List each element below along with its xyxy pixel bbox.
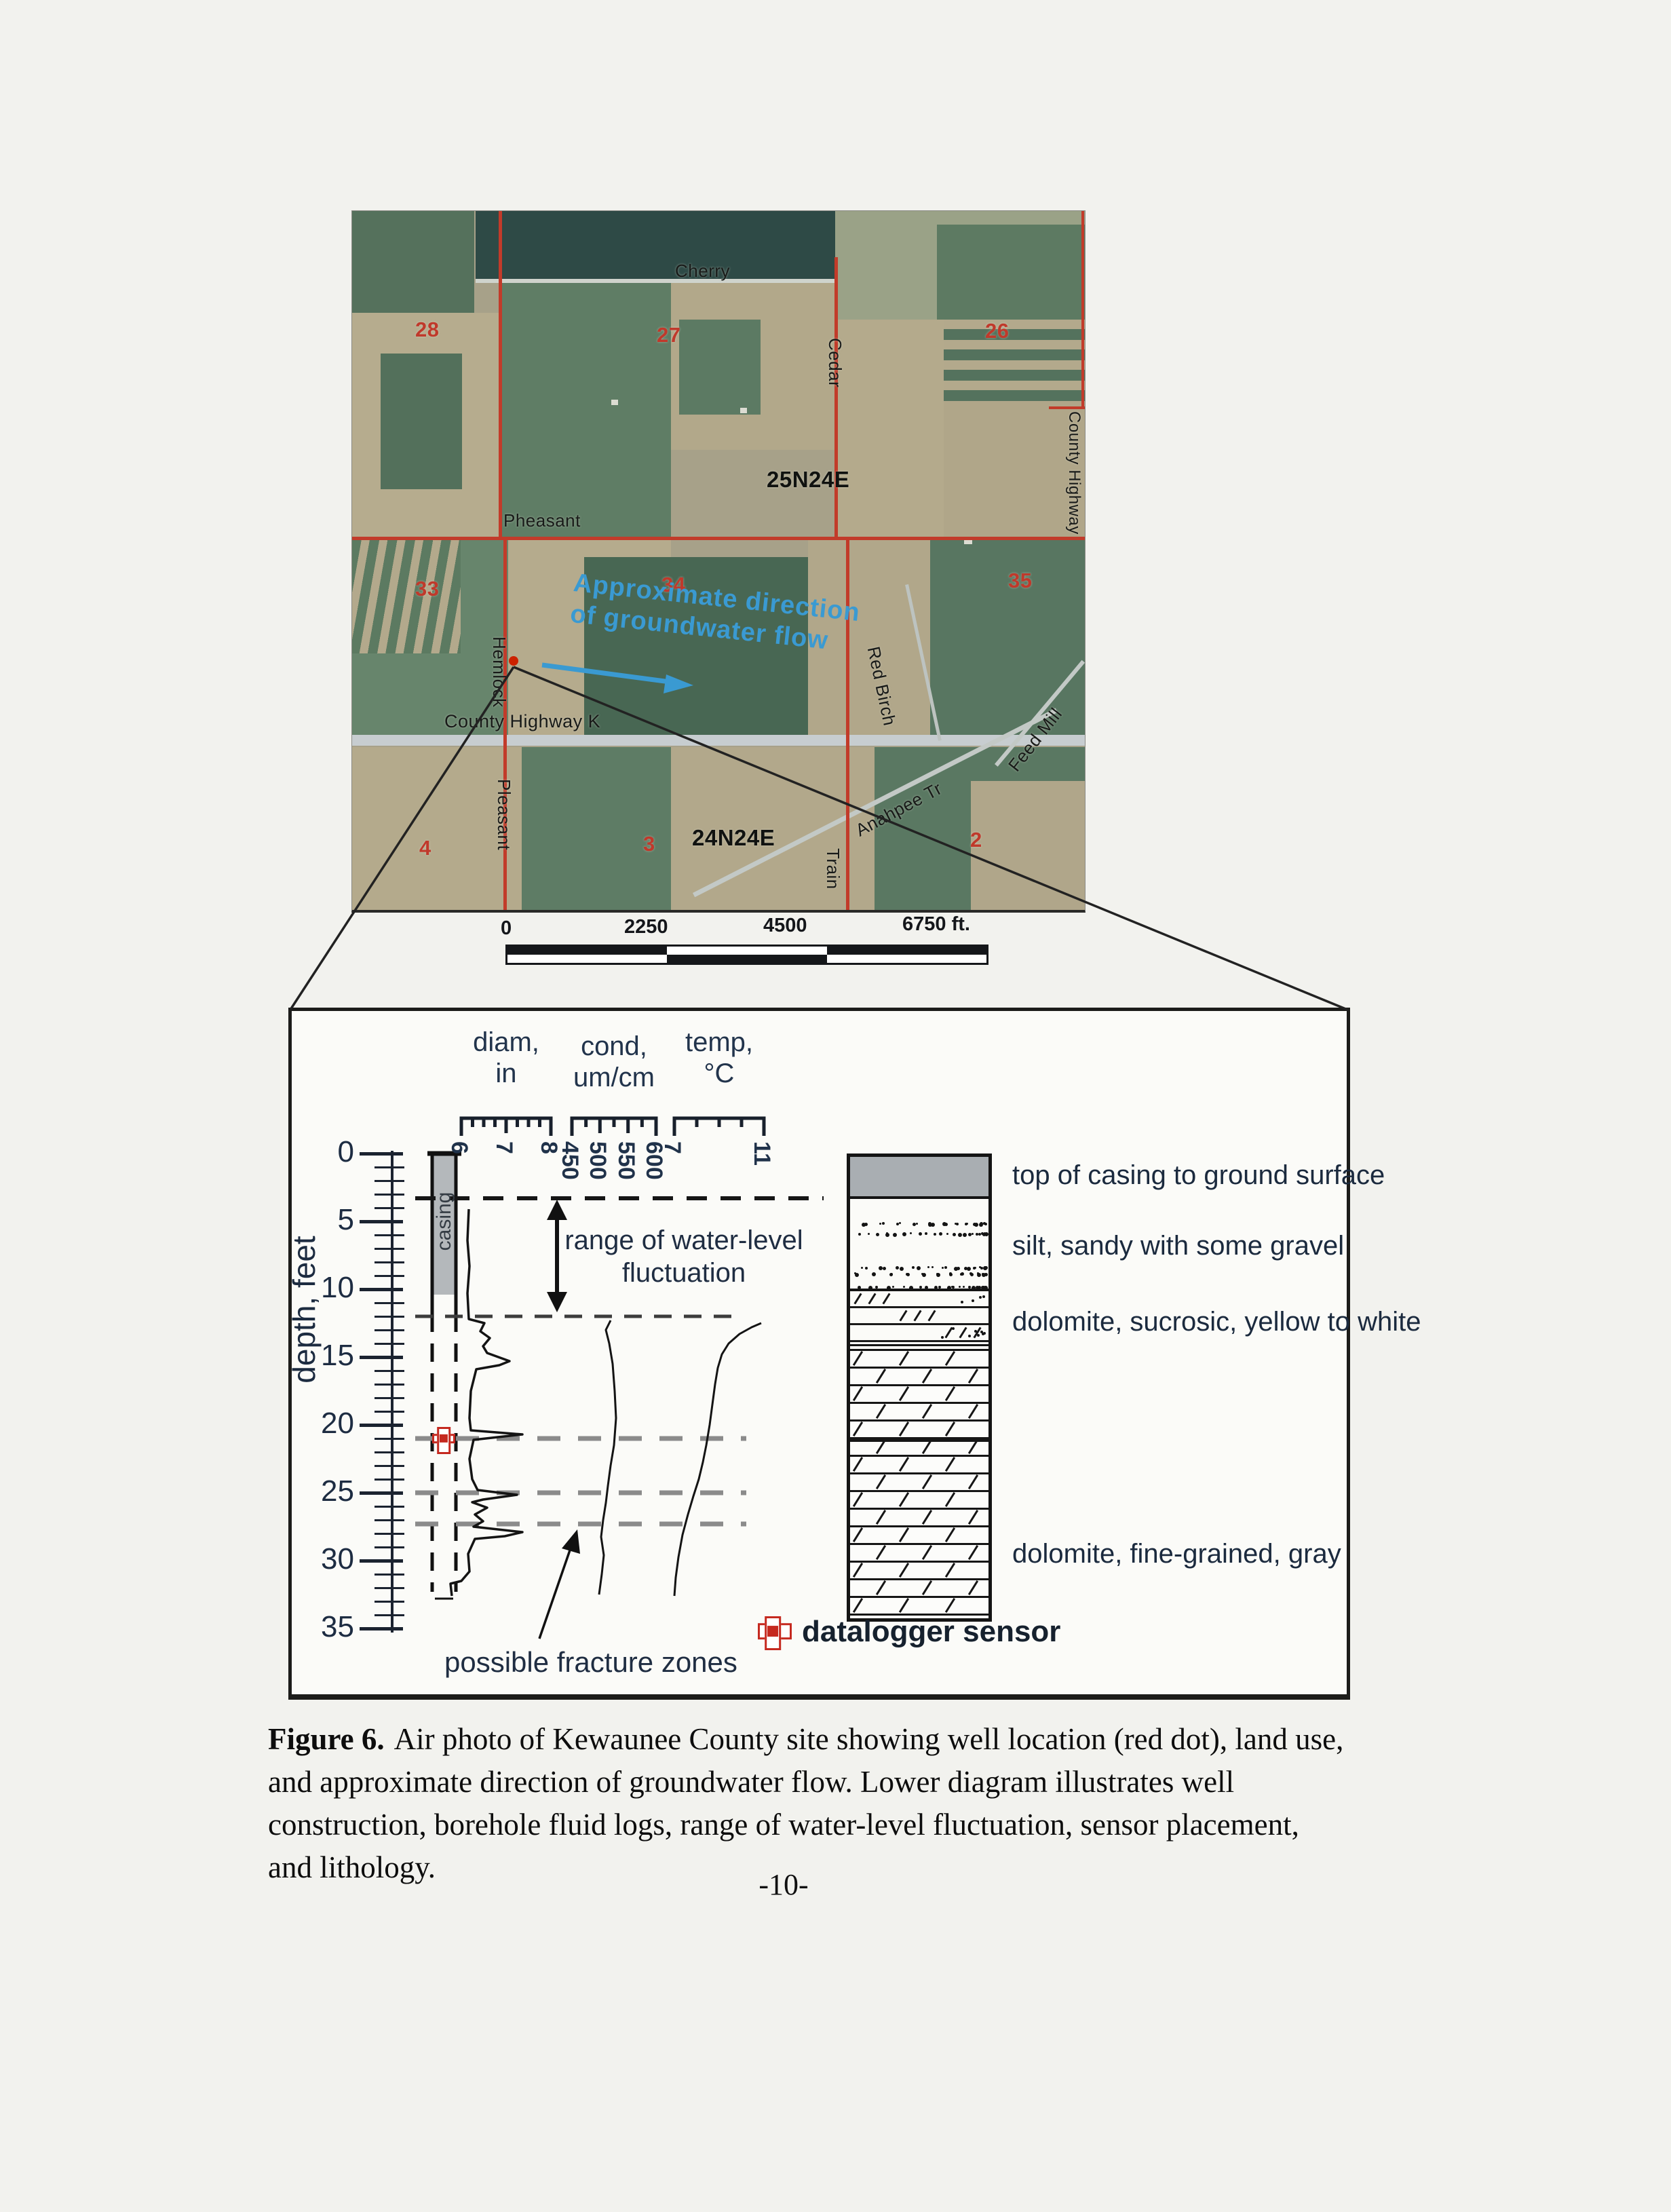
stipple-dot <box>955 1223 957 1225</box>
stipple-dot <box>963 1286 965 1288</box>
road-label-cedar: Cedar <box>824 338 845 387</box>
scalebar-tick-label: 2250 <box>624 916 668 938</box>
stipple-dot <box>892 1286 894 1288</box>
farmstead <box>740 408 747 413</box>
stipple-dot <box>900 1267 904 1271</box>
lith-internal-boundary <box>850 1439 988 1442</box>
brick-slash <box>899 1598 909 1613</box>
fracture-zones-annotation: possible fracture zones <box>444 1646 737 1679</box>
stipple-dot <box>936 1273 940 1277</box>
lith-layer-casing-fill <box>850 1157 988 1199</box>
page-number: -10- <box>726 1867 841 1902</box>
field-patch <box>381 354 462 489</box>
stipple-dot <box>925 1232 927 1235</box>
section-line-road <box>1049 406 1086 409</box>
brick-slash <box>876 1474 886 1489</box>
stipple-dot <box>902 1232 906 1236</box>
well-diagram-panel <box>288 1008 1350 1700</box>
brick-slash <box>853 1492 863 1507</box>
lith-label-dolomite-sucrosic: dolomite, sucrosic, yellow to white <box>1012 1307 1421 1337</box>
stipple-dot <box>855 1273 859 1277</box>
lithology-column <box>847 1153 992 1622</box>
township-label-24n24e: 24N24E <box>692 825 775 851</box>
brick-slash <box>899 1527 909 1542</box>
brick-slash <box>876 1404 886 1419</box>
stipple-dot <box>981 1286 984 1289</box>
water-level-range-annotation: range of water-level <box>548 1225 820 1256</box>
brick-slash <box>945 1527 955 1542</box>
lith-layer-dolomite-fine <box>850 1351 988 1616</box>
legend-sensor-label: datalogger sensor <box>802 1615 1060 1649</box>
stipple-dot <box>979 1266 981 1268</box>
road-label-hemlock: Hemlock <box>488 636 510 708</box>
brick-slash <box>853 1527 863 1542</box>
sucrosic-slash <box>899 1310 907 1322</box>
stipple-dot <box>865 1267 868 1270</box>
stipple-dot <box>896 1266 899 1270</box>
stipple-dot <box>919 1286 922 1289</box>
caption-text: Air photo of Kewaunee County site showin… <box>394 1722 1344 1756</box>
log-header-diam: diam, <box>468 1027 544 1058</box>
brick-slash <box>945 1457 955 1472</box>
lith-label-silt: silt, sandy with some gravel <box>1012 1231 1344 1261</box>
sucrosic-slash <box>853 1293 862 1305</box>
brick-slash <box>853 1422 863 1436</box>
brick-slash <box>899 1422 909 1436</box>
stipple-dot <box>906 1273 910 1276</box>
stipple-dot <box>917 1266 921 1270</box>
stipple-dot <box>879 1266 883 1270</box>
brick-slash <box>922 1580 932 1595</box>
stipple-dot <box>965 1223 967 1225</box>
contour-strip-field <box>352 538 461 653</box>
road-label-cherry: Cherry <box>675 261 730 282</box>
section-line-road <box>499 211 502 538</box>
scale-bar <box>505 945 988 965</box>
stipple-dot <box>864 1223 868 1226</box>
road-label-pheasant: Pheasant <box>503 510 581 531</box>
stipple-dot <box>883 1267 886 1270</box>
stipple-dot <box>934 1286 938 1289</box>
sucrosic-slash <box>927 1310 936 1322</box>
stipple-dot <box>916 1223 918 1225</box>
stipple-dot <box>861 1267 863 1269</box>
legend-sensor-icon <box>758 1616 788 1646</box>
stipple-dot <box>984 1266 986 1269</box>
datalogger-sensor-marker <box>432 1427 455 1450</box>
stipple-dot <box>931 1266 934 1268</box>
casing-label: casing <box>433 1192 456 1251</box>
lith-label-dolomite-fine: dolomite, fine-grained, gray <box>1012 1539 1341 1569</box>
sucrosic-dot <box>982 1333 984 1335</box>
sucrosic-slash <box>868 1293 876 1305</box>
brick-slash <box>853 1351 863 1366</box>
sucrosic-dot <box>941 1336 944 1339</box>
stipple-dot <box>973 1267 976 1270</box>
field-patch <box>971 781 1086 913</box>
aerial-photo: County Highway <box>351 210 1086 913</box>
stipple-dot <box>959 1286 961 1288</box>
stipple-dot <box>903 1286 905 1288</box>
brick-slash <box>899 1457 909 1472</box>
sucrosic-slash <box>959 1327 967 1339</box>
depth-axis-label: depth, feet <box>286 1236 322 1383</box>
stipple-dot <box>913 1223 916 1226</box>
stipple-dot <box>972 1286 976 1290</box>
stipple-dot <box>976 1233 978 1236</box>
sucrosic-slash <box>944 1327 953 1339</box>
log-header-temp: temp, <box>678 1027 760 1058</box>
stipple-dot <box>879 1223 881 1225</box>
section-number: 28 <box>415 318 439 342</box>
stipple-dot <box>951 1286 953 1288</box>
stipple-dot <box>910 1232 912 1234</box>
stipple-dot <box>858 1286 861 1289</box>
scalebar-tick-label: 0 <box>501 917 512 940</box>
stipple-dot <box>942 1222 946 1226</box>
stipple-dot <box>983 1222 986 1225</box>
stipple-dot <box>925 1286 928 1289</box>
stipple-dot <box>960 1273 963 1276</box>
stipple-dot <box>876 1233 879 1236</box>
stipple-dot <box>963 1233 967 1237</box>
road-cherry <box>476 279 835 283</box>
brick-slash <box>853 1457 863 1472</box>
stipple-dot <box>919 1232 922 1236</box>
section-number: 33 <box>415 577 439 601</box>
stipple-dot <box>974 1223 978 1227</box>
stipple-dot <box>978 1233 981 1236</box>
stipple-dot <box>875 1286 878 1289</box>
stipple-dot <box>957 1267 960 1270</box>
sucrosic-slash <box>913 1310 921 1322</box>
lith-label-casing: top of casing to ground surface <box>1012 1160 1385 1191</box>
stipple-dot <box>909 1286 913 1290</box>
section-number: 4 <box>419 836 431 860</box>
sucrosic-dot <box>968 1335 971 1337</box>
brick-slash <box>876 1545 886 1560</box>
stipple-dot <box>946 1233 948 1235</box>
caption-text: and approximate direction of groundwater… <box>268 1761 1421 1804</box>
section-number: 2 <box>970 828 982 852</box>
figure-caption: Figure 6.Air photo of Kewaunee County si… <box>268 1718 1421 1889</box>
field-patch <box>352 211 474 313</box>
stipple-dot <box>977 1273 981 1277</box>
stipple-dot <box>921 1273 923 1275</box>
brick-slash <box>945 1598 955 1613</box>
stipple-dot <box>885 1233 889 1237</box>
section-line-road <box>834 257 838 538</box>
brick-slash <box>853 1386 863 1401</box>
stipple-dot <box>934 1233 936 1236</box>
township-label-25n24e: 25N24E <box>767 467 849 493</box>
water-level-range-annotation2: fluctuation <box>548 1258 820 1289</box>
brick-slash <box>853 1598 863 1613</box>
brick-slash <box>968 1545 978 1560</box>
stipple-dot <box>927 1266 929 1268</box>
brick-slash <box>945 1492 955 1507</box>
scalebar-tick-label: 6750 ft. <box>902 913 970 936</box>
stipple-dot <box>958 1233 962 1237</box>
farmstead <box>611 400 618 405</box>
stipple-dot <box>899 1222 901 1224</box>
section-number: 26 <box>985 319 1009 343</box>
stipple-dot <box>970 1273 974 1276</box>
lith-layer-silt <box>850 1199 988 1291</box>
stipple-dot <box>944 1266 947 1269</box>
brick-slash <box>853 1563 863 1578</box>
stipple-dot <box>968 1286 971 1289</box>
section-line-road <box>1081 211 1084 408</box>
field-patch <box>835 320 944 537</box>
figure-caption-label: Figure 6. <box>268 1722 385 1756</box>
log-header-diam-unit: in <box>468 1059 544 1089</box>
brick-slash <box>968 1474 978 1489</box>
brick-slash <box>968 1369 978 1384</box>
road-pheasant <box>352 537 1086 540</box>
brick-slash <box>922 1474 932 1489</box>
field-patch <box>476 211 835 280</box>
lith-layer-dolomite-sucrosic <box>850 1291 988 1344</box>
stipple-dot <box>953 1233 956 1236</box>
brick-slash <box>945 1386 955 1401</box>
stipple-dot <box>893 1233 897 1237</box>
field-patch <box>679 320 761 415</box>
brick-slash <box>922 1369 932 1384</box>
brick-slash <box>899 1563 909 1578</box>
stipple-dot <box>887 1286 891 1290</box>
log-header-temp-unit: °C <box>678 1059 760 1089</box>
brick-slash <box>945 1351 955 1366</box>
brick-slash <box>899 1492 909 1507</box>
stipple-dot <box>938 1286 941 1289</box>
stipple-dot <box>890 1273 893 1276</box>
log-header-cond: cond, <box>573 1031 655 1062</box>
field-patch <box>522 747 671 913</box>
sucrosic-dot <box>961 1301 963 1303</box>
brick-slash <box>876 1580 886 1595</box>
stipple-dot <box>949 1273 953 1276</box>
brick-slash <box>945 1563 955 1578</box>
well-location-marker <box>509 656 518 666</box>
stipple-dot <box>982 1233 986 1236</box>
sucrosic-slash <box>882 1293 890 1305</box>
stipple-dot <box>868 1286 872 1290</box>
caption-text: construction, borehole fluid logs, range… <box>268 1804 1421 1846</box>
brick-slash <box>876 1510 886 1525</box>
lith-boundary <box>850 1344 988 1351</box>
brick-slash <box>968 1404 978 1419</box>
road-label-county-highway-k: County Highway K <box>444 711 600 732</box>
scanned-report-page: County Highway Cherry Cedar Pheasant Hem… <box>0 0 1671 2212</box>
brick-slash <box>922 1510 932 1525</box>
stipple-dot <box>984 1273 987 1276</box>
stipple-dot <box>858 1233 861 1236</box>
brick-slash <box>899 1386 909 1401</box>
brick-slash <box>968 1510 978 1525</box>
sucrosic-dot <box>972 1299 974 1302</box>
field-patch <box>501 280 671 538</box>
stipple-dot <box>872 1273 875 1275</box>
stipple-dot <box>942 1267 944 1269</box>
stipple-dot <box>912 1266 915 1269</box>
road-county-highway-k <box>352 735 1086 746</box>
brick-slash <box>876 1369 886 1384</box>
sucrosic-dot <box>982 1295 985 1298</box>
stipple-dot <box>972 1233 974 1235</box>
section-number: 3 <box>643 832 655 856</box>
brick-slash <box>945 1422 955 1436</box>
scalebar-tick-label: 4500 <box>763 915 807 937</box>
contour-strip-field <box>944 320 1086 401</box>
stipple-dot <box>967 1267 971 1271</box>
brick-slash <box>922 1545 932 1560</box>
brick-slash <box>922 1404 932 1419</box>
brick-slash <box>968 1580 978 1595</box>
road-label-county-highway-right: County Highway <box>1064 411 1083 535</box>
section-number: 27 <box>657 323 680 347</box>
stipple-dot <box>928 1222 931 1225</box>
log-header-cond-unit: um/cm <box>573 1063 655 1093</box>
stipple-dot <box>968 1233 972 1236</box>
stipple-dot <box>868 1233 870 1235</box>
section-number: 35 <box>1008 569 1032 593</box>
caption-text: and lithology. <box>268 1846 1421 1889</box>
brick-slash <box>899 1351 909 1366</box>
sucrosic-dot <box>979 1296 982 1299</box>
stipple-dot <box>982 1273 984 1275</box>
road-label-train: Train <box>822 848 843 890</box>
road-label-pleasant: Pleasant <box>493 779 514 850</box>
stipple-dot <box>939 1232 942 1236</box>
stipple-dot <box>882 1222 885 1225</box>
